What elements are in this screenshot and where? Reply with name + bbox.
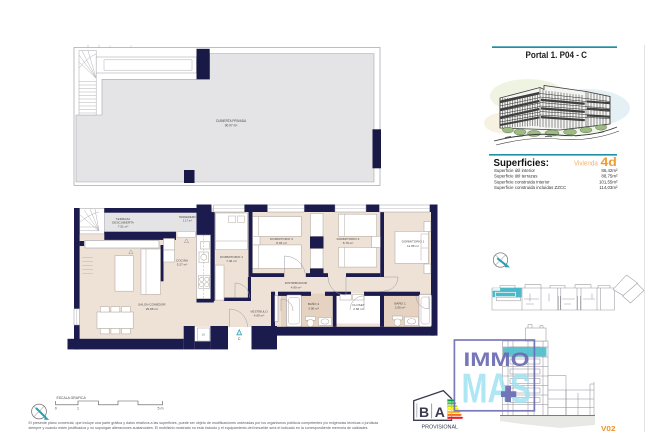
svg-text:4.89 m²: 4.89 m² xyxy=(291,285,302,289)
svg-text:2.68 m²: 2.68 m² xyxy=(353,307,364,311)
svg-text:5.27 m²: 5.27 m² xyxy=(177,263,188,267)
svg-text:4d: 4d xyxy=(601,155,617,169)
svg-text:8.79 m²: 8.79 m² xyxy=(343,241,354,245)
svg-text:B: B xyxy=(419,404,429,420)
svg-text:88,75m²: 88,75m² xyxy=(601,173,618,178)
svg-text:5 m: 5 m xyxy=(158,407,164,411)
svg-text:CUBIERTA PRIVADA: CUBIERTA PRIVADA xyxy=(216,119,247,123)
svg-text:A: A xyxy=(435,404,445,420)
svg-text:Superficie construida interior: Superficie construida interior xyxy=(494,179,550,184)
svg-text:Superficie útil interior: Superficie útil interior xyxy=(494,168,536,173)
svg-text:siempre y cuando estén justifi: siempre y cuando estén justificados y no… xyxy=(29,426,368,430)
svg-text:1: 1 xyxy=(77,407,79,411)
svg-text:Portal 1. P04 - C: Portal 1. P04 - C xyxy=(526,50,588,60)
svg-text:86,42m²: 86,42m² xyxy=(601,168,618,173)
svg-text:Superficie útil terrazas: Superficie útil terrazas xyxy=(494,173,538,178)
svg-text:8.03 m²: 8.03 m² xyxy=(276,241,287,245)
svg-text:3.90 m²: 3.90 m² xyxy=(308,306,319,310)
svg-text:1.17 m²: 1.17 m² xyxy=(183,219,192,223)
svg-text:MAS: MAS xyxy=(462,365,532,412)
svg-text:Vivienda: Vivienda xyxy=(574,159,598,168)
svg-text:7.51 m²: 7.51 m² xyxy=(118,224,129,228)
svg-text:ESCALA GRAFICA: ESCALA GRAFICA xyxy=(57,396,87,400)
svg-text:0: 0 xyxy=(55,407,57,411)
svg-text:3.55 m²: 3.55 m² xyxy=(395,306,406,310)
svg-text:Superficie construida incluida: Superficie construida incluidas ZZCC xyxy=(494,185,566,190)
svg-text:El presente plano comercial, q: El presente plano comercial, que incluye… xyxy=(29,421,379,425)
svg-text:V02: V02 xyxy=(601,424,616,433)
svg-text:29.88 m²: 29.88 m² xyxy=(146,307,158,311)
svg-text:TENDEDERO: TENDEDERO xyxy=(179,215,196,219)
svg-text:4.09 m²: 4.09 m² xyxy=(254,314,265,318)
svg-text:LV: LV xyxy=(202,333,205,337)
svg-text:101,55m²: 101,55m² xyxy=(599,179,618,184)
svg-text:PROVISIONAL: PROVISIONAL xyxy=(422,425,459,431)
svg-text:C: C xyxy=(238,337,241,341)
svg-text:11.88 m²: 11.88 m² xyxy=(407,244,419,248)
svg-text:7.46 m²: 7.46 m² xyxy=(226,259,237,263)
svg-text:114,03m²: 114,03m² xyxy=(599,185,618,190)
svg-text:90.07 m²: 90.07 m² xyxy=(225,124,238,128)
